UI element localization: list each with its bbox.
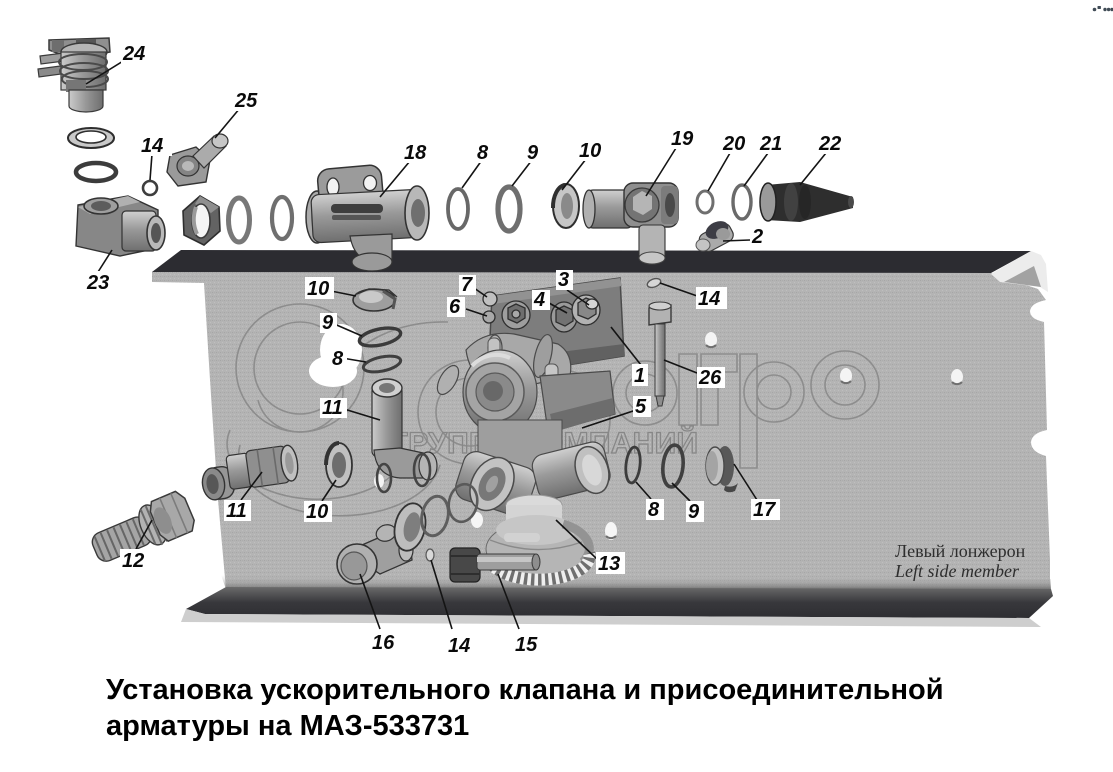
svg-text:9: 9 — [688, 501, 700, 523]
svg-text:4: 4 — [533, 289, 545, 311]
svg-text:9: 9 — [527, 142, 539, 164]
svg-text:8: 8 — [648, 499, 660, 521]
svg-text:8: 8 — [332, 348, 344, 370]
svg-text:13: 13 — [598, 553, 620, 575]
svg-text:10: 10 — [307, 278, 329, 300]
svg-text:Left side member: Left side member — [894, 561, 1020, 581]
svg-text:арматуры на МАЗ-533731: арматуры на МАЗ-533731 — [106, 710, 469, 742]
svg-text:11: 11 — [322, 397, 343, 419]
svg-text:26: 26 — [698, 367, 722, 389]
svg-text:20: 20 — [722, 133, 745, 155]
svg-text:21: 21 — [759, 133, 782, 155]
svg-text:17: 17 — [753, 499, 776, 521]
svg-text:18: 18 — [404, 142, 427, 164]
svg-text:15: 15 — [515, 634, 538, 656]
svg-text:14: 14 — [448, 635, 470, 657]
svg-text:3: 3 — [558, 269, 569, 291]
svg-text:Установка ускорительного клапа: Установка ускорительного клапана и присо… — [106, 674, 944, 706]
svg-text:9: 9 — [322, 312, 334, 334]
svg-text:25: 25 — [234, 90, 258, 112]
svg-text:2: 2 — [751, 226, 763, 248]
svg-text:11: 11 — [226, 500, 247, 522]
svg-text:14: 14 — [698, 288, 720, 310]
svg-text:22: 22 — [818, 133, 841, 155]
svg-text:23: 23 — [86, 272, 109, 294]
svg-text:5: 5 — [635, 396, 647, 418]
svg-text:12: 12 — [122, 550, 144, 572]
svg-text:14: 14 — [141, 135, 163, 157]
svg-text:16: 16 — [372, 632, 395, 654]
svg-text:19: 19 — [671, 128, 694, 150]
svg-text:24: 24 — [122, 43, 145, 65]
svg-text:Левый лонжерон: Левый лонжерон — [895, 541, 1026, 561]
svg-text:10: 10 — [306, 501, 328, 523]
svg-text:8: 8 — [477, 142, 489, 164]
svg-text:7: 7 — [461, 274, 473, 296]
svg-text:10: 10 — [579, 140, 601, 162]
svg-text:6: 6 — [449, 296, 461, 318]
svg-text:1: 1 — [634, 365, 645, 387]
